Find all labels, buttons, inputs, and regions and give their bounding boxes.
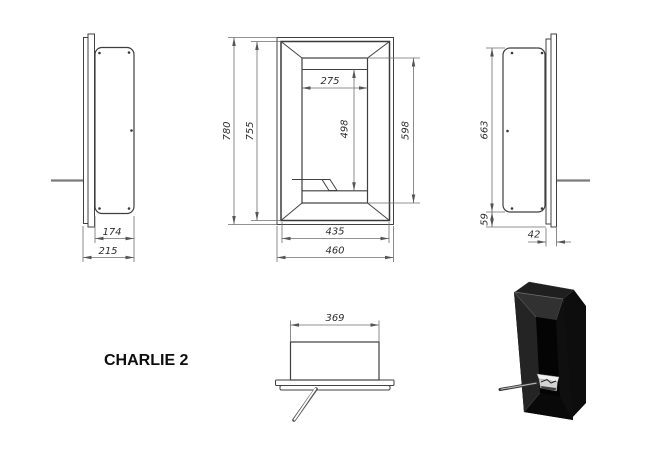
dim-bottom-offset: 59	[480, 213, 491, 226]
dim-opening-height: 498	[340, 119, 351, 138]
screw-dots-right	[506, 52, 543, 210]
dim-flange-depth: 42	[528, 230, 541, 241]
dim-opening-width: 275	[320, 76, 339, 87]
side-view-right: 663 59 42	[480, 34, 591, 247]
dim-burner-box-width: 369	[325, 313, 344, 324]
dim-body-depth: 174	[102, 227, 121, 238]
top-view: 369	[276, 313, 395, 420]
dim-overall-height: 780	[222, 121, 233, 140]
dim-overall-width: 460	[325, 246, 344, 257]
front-view: 780 755 598 275 498 435 460	[222, 38, 420, 263]
product-title: CHARLIE 2	[104, 352, 189, 369]
dim-inner-frame-height: 598	[401, 121, 412, 140]
screw-dots-left	[98, 51, 133, 210]
burner-lever	[322, 180, 337, 191]
dim-frame-width: 435	[325, 227, 344, 238]
dim-frame-height: 755	[245, 121, 256, 140]
product-photo	[500, 282, 586, 420]
poker-rod-top	[294, 389, 316, 420]
side-view-left: 174 215	[51, 34, 134, 262]
technical-drawing-canvas: 174 215 780 755 598 275 498	[0, 0, 650, 468]
dim-overall-depth: 215	[98, 246, 117, 257]
dim-body-height: 663	[480, 120, 491, 139]
